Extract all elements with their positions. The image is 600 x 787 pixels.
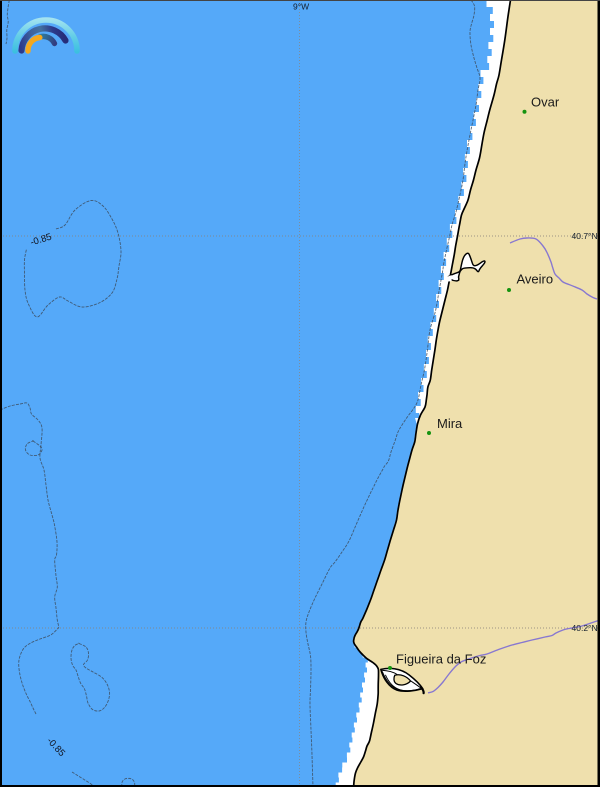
svg-text:Mira: Mira (437, 416, 463, 431)
svg-text:9°W: 9°W (293, 2, 309, 12)
svg-text:Ovar: Ovar (531, 95, 560, 110)
svg-text:40.7°N: 40.7°N (572, 231, 598, 241)
svg-text:40.2°N: 40.2°N (572, 623, 598, 633)
svg-text:Aveiro: Aveiro (517, 272, 554, 287)
svg-text:Figueira da Foz: Figueira da Foz (396, 652, 486, 667)
